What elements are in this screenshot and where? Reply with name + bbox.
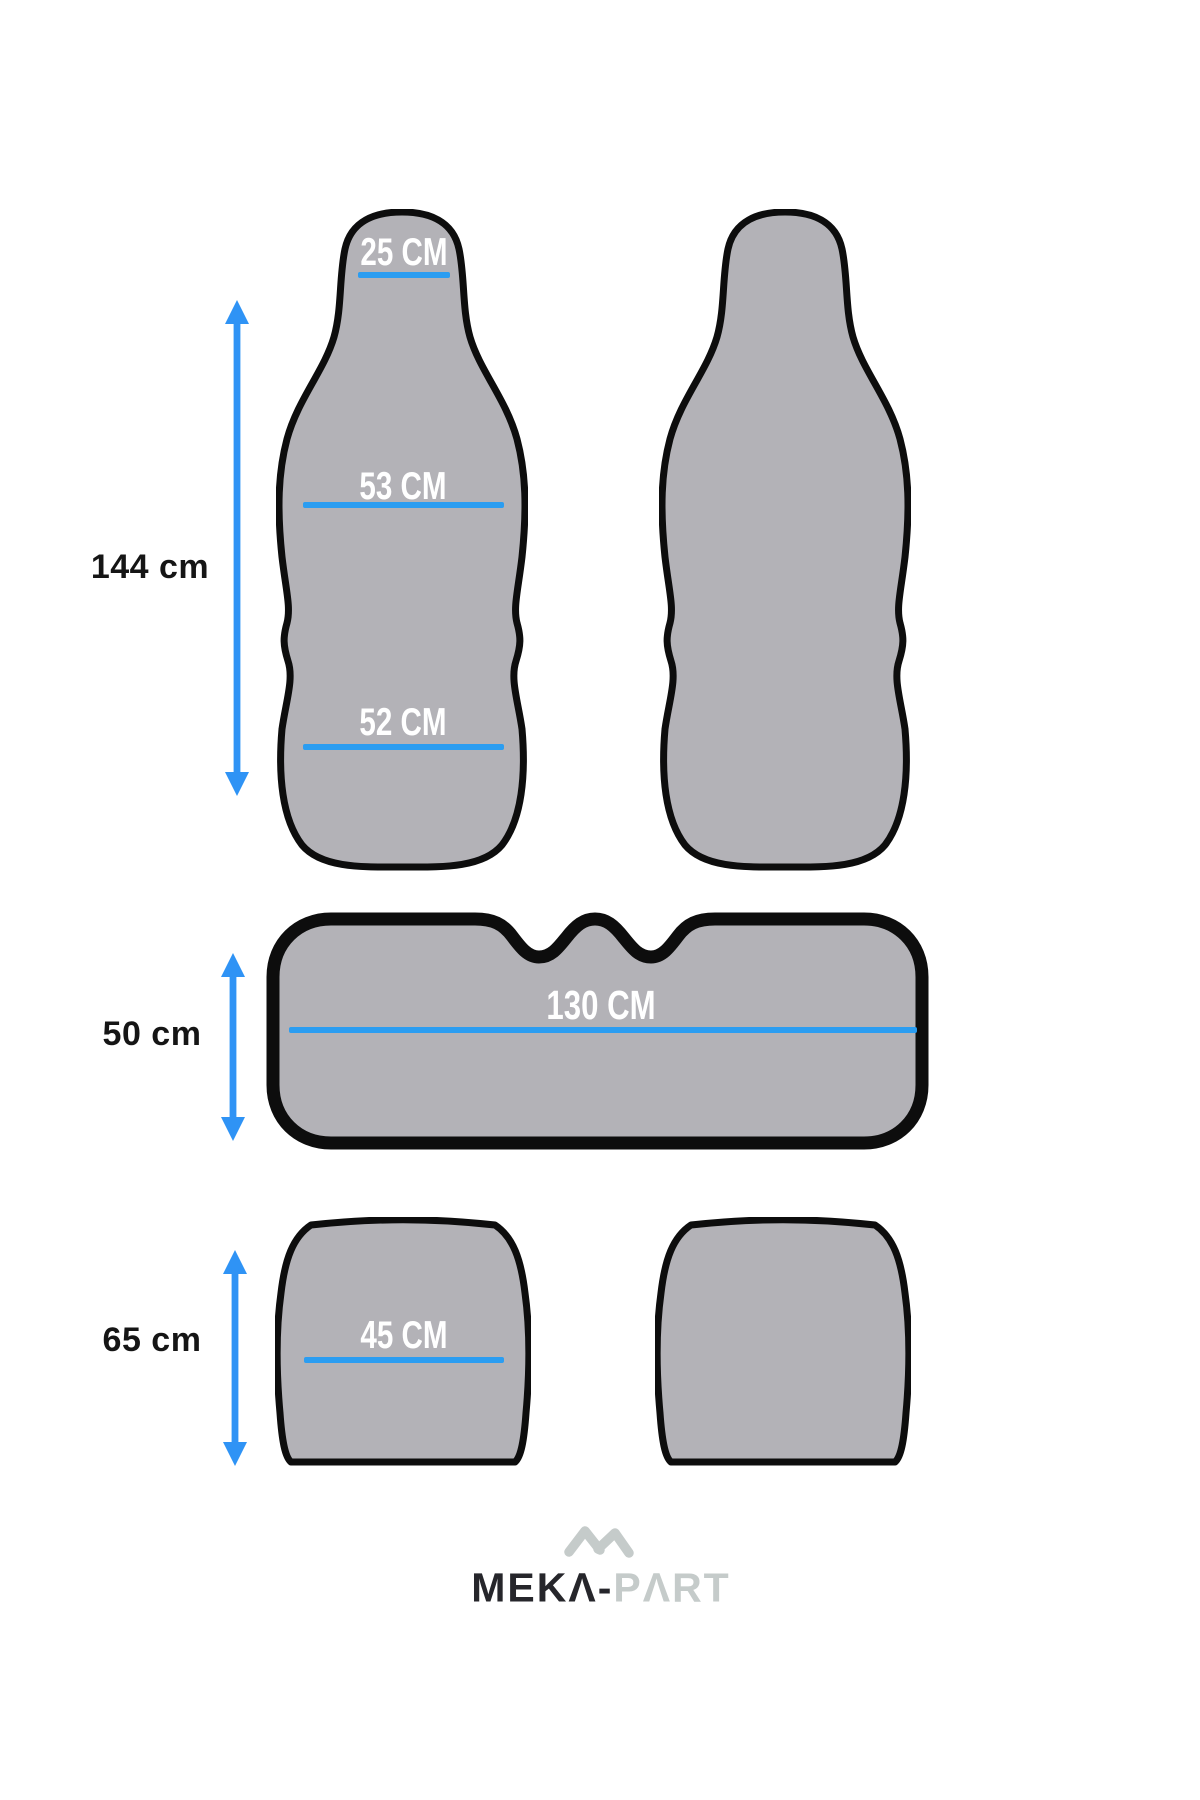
- brand-logo-text-light: PΛRT: [613, 1565, 730, 1611]
- seat-cover-diagram: 25 CM 53 CM 52 CM 130 CM 45 CM 144 cm 50…: [0, 0, 1200, 1800]
- bottom-cushion-width-label: 45 CM: [360, 1316, 447, 1354]
- backrest-width-label: 53 CM: [359, 467, 446, 505]
- headrest-width-label: 25 CM: [360, 233, 447, 271]
- brand-logo-text-dark: MEKΛ-: [471, 1565, 613, 1611]
- backrest-width-line: [303, 502, 504, 508]
- bench-height-arrow: [220, 953, 246, 1141]
- bottom-cushion-height-label: 65 cm: [103, 1323, 202, 1357]
- bench-height-label: 50 cm: [103, 1017, 202, 1051]
- front-left-seat-cover-shape: [276, 209, 528, 871]
- bench-width-line: [289, 1027, 917, 1033]
- bench-width-label: 130 CM: [546, 986, 655, 1027]
- headrest-width-line: [358, 272, 450, 278]
- bottom-cushion-right-shape: [655, 1217, 911, 1469]
- bottom-cushion-height-arrow: [222, 1250, 248, 1466]
- front-seat-height-label: 144 cm: [91, 550, 209, 584]
- front-right-seat-cover-shape: [659, 209, 911, 871]
- brand-logo-text: MEKΛ-PΛRT: [471, 1568, 730, 1609]
- mountain-icon: [562, 1524, 638, 1562]
- bottom-cushion-width-line: [304, 1357, 504, 1363]
- cushion-width-label: 52 CM: [359, 703, 446, 741]
- cushion-width-line: [303, 744, 504, 750]
- front-seat-height-arrow: [224, 300, 250, 796]
